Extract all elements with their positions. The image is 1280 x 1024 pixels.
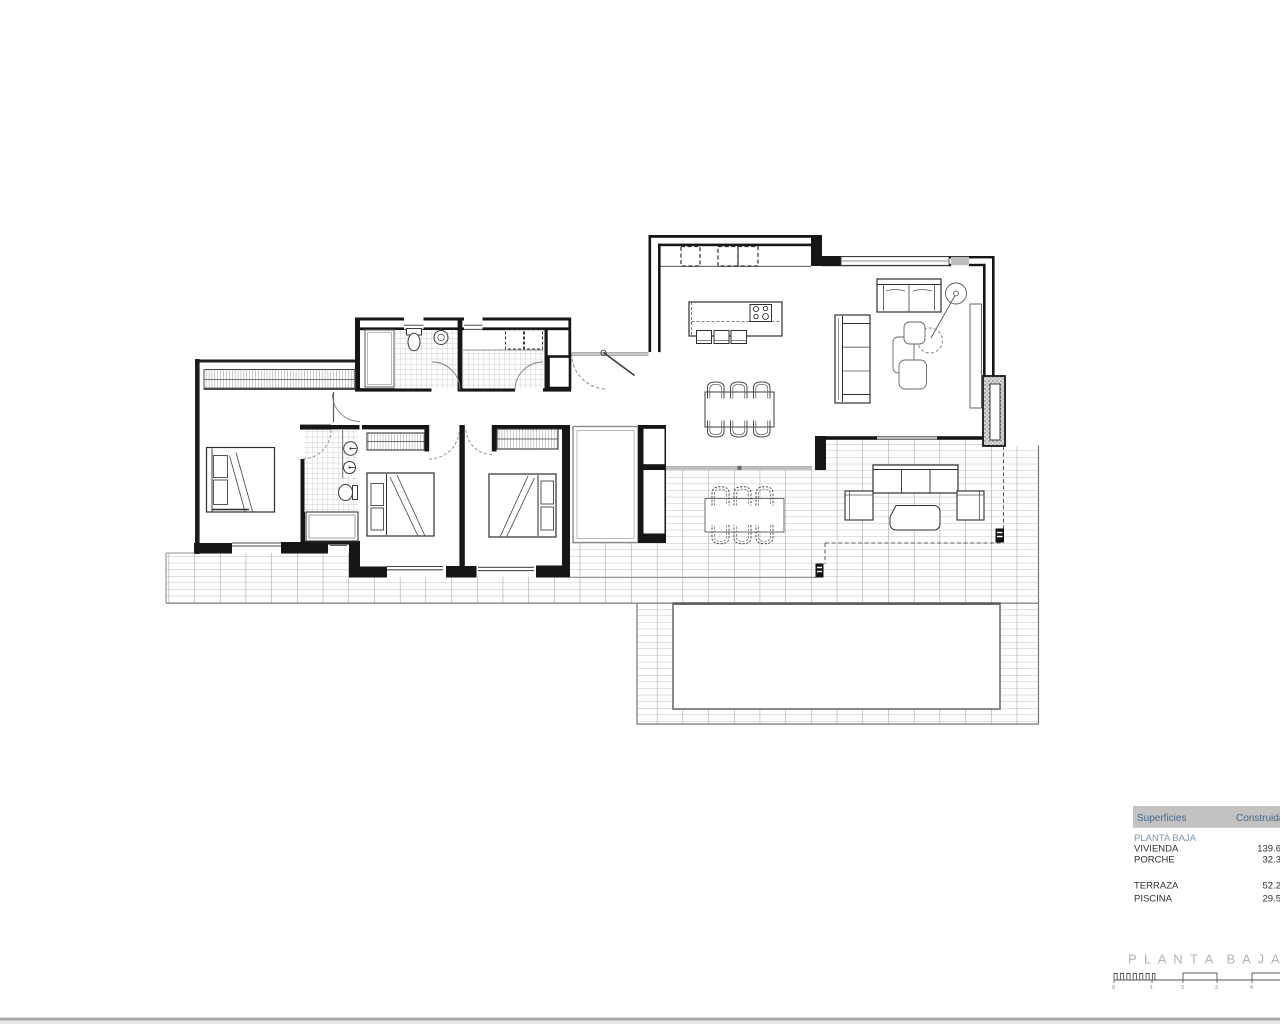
svg-text:Superficies: Superficies — [1137, 813, 1186, 824]
svg-text:PISCINA: PISCINA — [1134, 894, 1173, 905]
svg-text:TERRAZA: TERRAZA — [1134, 881, 1179, 892]
svg-text:PLANTA BAJA: PLANTA BAJA — [1134, 833, 1197, 844]
svg-text:VIVIENDA: VIVIENDA — [1134, 844, 1179, 855]
svg-text:1: 1 — [1150, 985, 1153, 991]
svg-text:32.3: 32.3 — [1263, 855, 1280, 866]
svg-text:0: 0 — [1112, 985, 1115, 991]
svg-text:2: 2 — [1181, 985, 1184, 991]
svg-text:4: 4 — [1250, 985, 1253, 991]
svg-text:3: 3 — [1215, 985, 1218, 991]
svg-text:Construida: Construida — [1236, 813, 1280, 824]
svg-text:29.5: 29.5 — [1263, 894, 1280, 905]
svg-text:52.2: 52.2 — [1263, 881, 1280, 892]
svg-text:PORCHE: PORCHE — [1134, 855, 1175, 866]
svg-text:P L A N T A B A J A: P L A N T A B A J A — [1128, 952, 1280, 967]
svg-text:139.6: 139.6 — [1257, 844, 1280, 855]
